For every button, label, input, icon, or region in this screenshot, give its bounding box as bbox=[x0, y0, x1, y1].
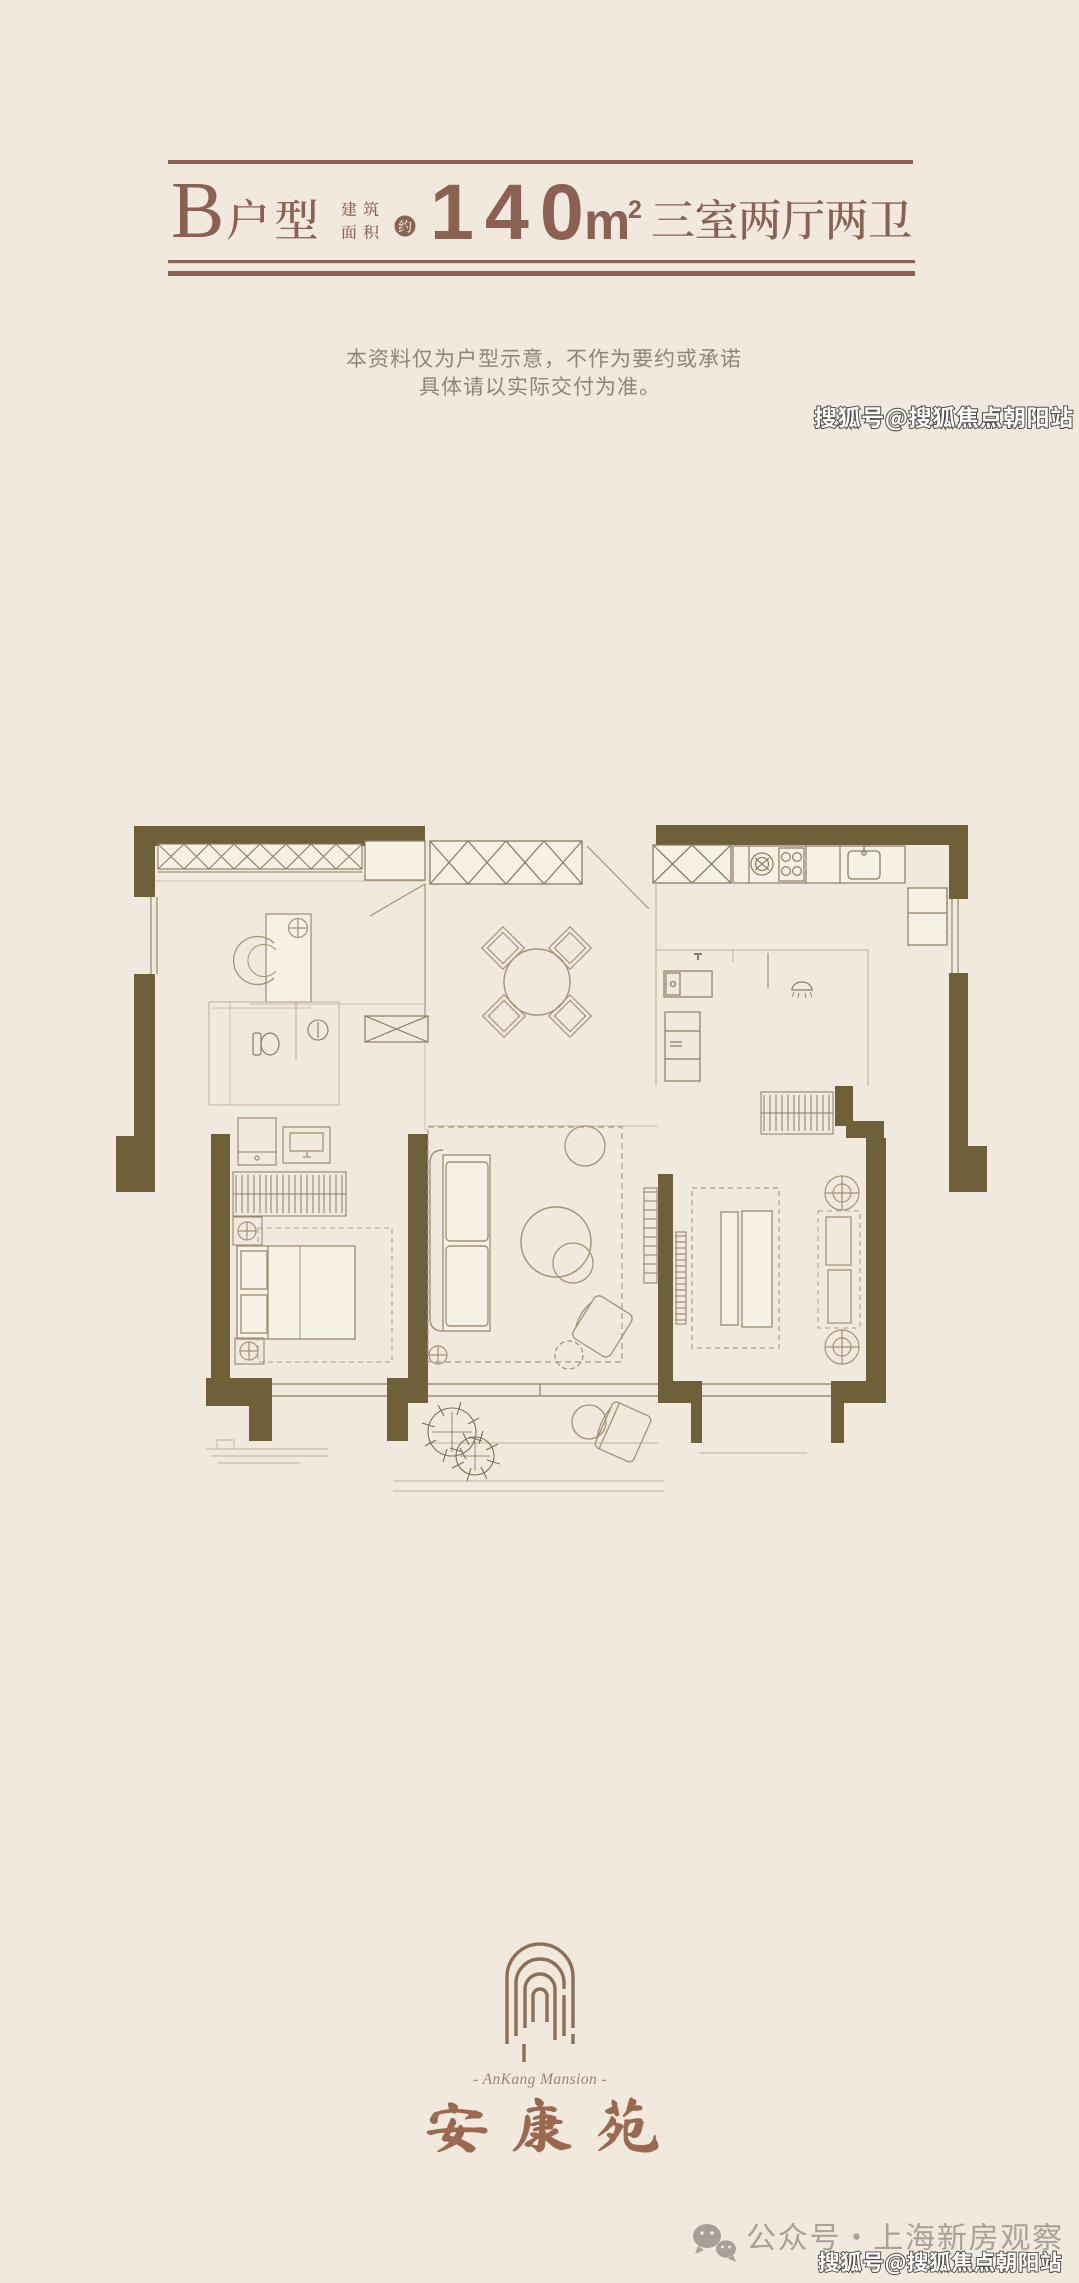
svg-text:m: m bbox=[584, 193, 630, 251]
svg-text:B: B bbox=[171, 167, 224, 255]
svg-text:140: 140 bbox=[430, 167, 595, 256]
svg-text:2: 2 bbox=[628, 196, 642, 224]
svg-text:- AnKang Mansion -: - AnKang Mansion - bbox=[473, 2071, 607, 2088]
